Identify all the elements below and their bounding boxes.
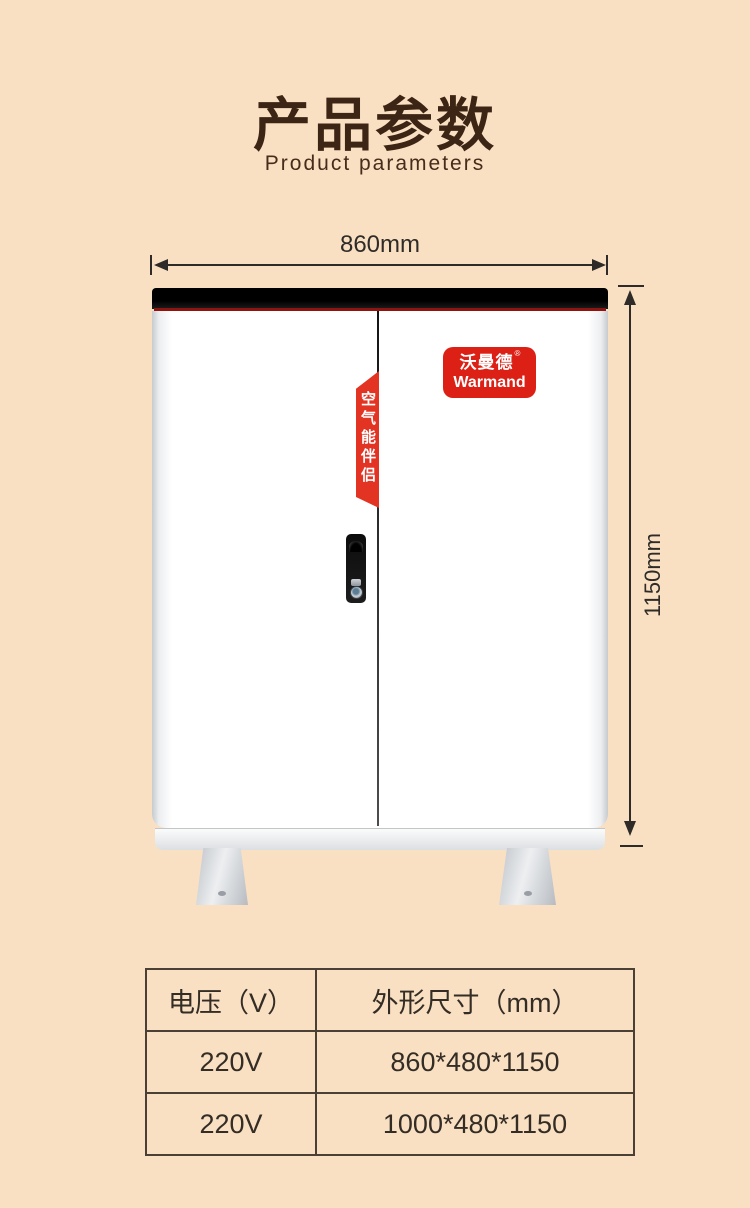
spec-table-header-row: 电压（V） 外形尺寸（mm） xyxy=(146,969,634,1031)
spec-cell-voltage: 220V xyxy=(146,1031,316,1093)
spec-cell-dimensions: 860*480*1150 xyxy=(316,1031,634,1093)
height-dimension-line xyxy=(629,294,631,832)
ribbon-text: 空气能伴侣 xyxy=(356,391,379,508)
ribbon-banner: 空气能伴侣 xyxy=(356,371,379,508)
spec-cell-voltage: 220V xyxy=(146,1093,316,1155)
spec-cell-dimensions: 1000*480*1150 xyxy=(316,1093,634,1155)
width-dimension-line xyxy=(167,264,593,266)
brand-name-cn: 沃曼德® xyxy=(460,353,520,373)
handle-recess xyxy=(349,541,363,552)
height-dimension-tick-bottom xyxy=(620,845,643,847)
lock-plate xyxy=(351,579,361,586)
spec-table-row: 220V 860*480*1150 xyxy=(146,1031,634,1093)
spec-header-dimensions: 外形尺寸（mm） xyxy=(316,969,634,1031)
cabinet-foot-left xyxy=(196,848,248,905)
door-handle xyxy=(346,534,366,603)
brand-name-en: Warmand xyxy=(453,374,525,392)
height-dimension-tick-top xyxy=(618,285,644,287)
height-dimension-label: 1150mm xyxy=(640,515,664,635)
width-dimension-tick-right xyxy=(606,255,608,275)
arrow-up-icon xyxy=(624,290,636,305)
page-subtitle: Product parameters xyxy=(0,152,750,176)
foot-screw-hole xyxy=(524,891,532,896)
cabinet-body xyxy=(152,311,608,828)
lock-cylinder-icon xyxy=(350,586,363,599)
registered-mark-icon: ® xyxy=(515,349,521,358)
brand-badge: 沃曼德® Warmand xyxy=(443,347,536,398)
arrow-left-icon xyxy=(154,259,168,271)
cabinet-foot-right xyxy=(499,848,556,905)
page-title: 产品参数 xyxy=(0,78,750,162)
cabinet-base xyxy=(155,828,605,850)
spec-table: 电压（V） 外形尺寸（mm） 220V 860*480*1150 220V 10… xyxy=(145,968,635,1156)
width-dimension-tick-left xyxy=(150,255,152,275)
arrow-down-icon xyxy=(624,821,636,836)
spec-header-voltage: 电压（V） xyxy=(146,969,316,1031)
product-parameters-page: 产品参数 Product parameters 860mm 空气能伴侣 沃曼德®… xyxy=(0,0,750,1208)
arrow-right-icon xyxy=(592,259,606,271)
cabinet-top-panel xyxy=(152,288,608,309)
width-dimension-label: 860mm xyxy=(152,231,608,259)
spec-table-row: 220V 1000*480*1150 xyxy=(146,1093,634,1155)
foot-screw-hole xyxy=(218,891,226,896)
